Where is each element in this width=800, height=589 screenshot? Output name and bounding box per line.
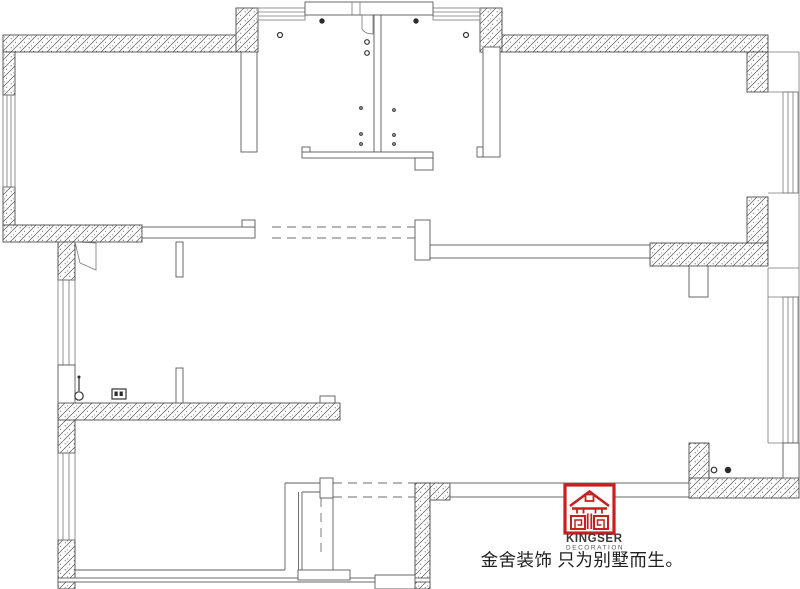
right-wall-mid <box>747 197 768 243</box>
core-left-wall <box>241 52 257 152</box>
entry-core-left-shoulder <box>236 8 258 52</box>
bottom-center-wall <box>415 483 430 589</box>
left-wall-infill <box>58 365 75 403</box>
stair-base <box>298 570 350 580</box>
bottom-edge-line <box>58 578 430 582</box>
entry-core-right-shoulder <box>480 8 502 52</box>
core-bottom-stub <box>415 158 433 170</box>
entry-doors-head <box>305 2 433 15</box>
mid-left-cross-wall <box>3 225 142 242</box>
right-wall-upper <box>747 52 768 92</box>
core-bottom-bar-step <box>302 147 310 152</box>
column-bottom-right <box>783 443 799 478</box>
drain-dot <box>725 467 731 473</box>
partition-mid-left <box>142 227 255 238</box>
brand-trademark-dot <box>613 533 616 536</box>
bottom-stub <box>375 575 415 589</box>
wall-end-post <box>320 396 335 403</box>
partition-mid-step <box>415 220 430 260</box>
floor-plan-canvas: KINGSER DECORATION 金舍装饰 只为别墅而生。 <box>0 0 800 589</box>
partition-mid-left-post <box>242 220 255 227</box>
stub-wall-lower <box>176 368 183 403</box>
bottom-right-wall <box>689 478 799 498</box>
floor-drain-dot <box>413 18 418 23</box>
stair-post <box>320 478 333 498</box>
kingser-house-seal-icon <box>565 485 614 533</box>
brand-slogan: 金舍装饰 只为别墅而生。 <box>481 550 684 570</box>
floor-drain-dot <box>319 18 324 23</box>
paper-background <box>0 0 800 589</box>
left-wall-upper <box>3 52 15 95</box>
mid-right-cross-wall <box>650 243 768 266</box>
core-bottom-bar <box>302 152 433 158</box>
top-wall-left <box>3 35 236 52</box>
lower-left-room-top-wall <box>58 403 340 420</box>
top-wall-right <box>502 35 768 52</box>
column-dining <box>689 266 708 297</box>
core-right-wall <box>483 47 500 157</box>
left-wall-lower-a <box>58 242 75 280</box>
core-divider-wall <box>374 15 381 152</box>
left-wall-mid <box>3 187 15 225</box>
partition-mid-right <box>430 245 650 258</box>
stub-wall-upper <box>176 242 183 277</box>
core-right-wall-foot <box>477 147 483 157</box>
